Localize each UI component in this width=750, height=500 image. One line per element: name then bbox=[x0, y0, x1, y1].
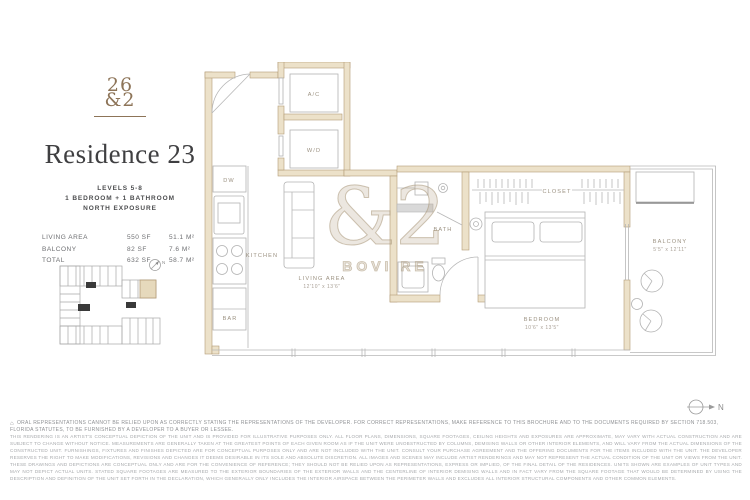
wd-closet: W/D bbox=[279, 130, 338, 168]
bedroom-closet: CLOSET bbox=[472, 179, 624, 205]
brochure-page: 26 &2 Residence 23 LEVELS 5-8 1 BEDROOM … bbox=[0, 0, 750, 500]
residence-title: Residence 23 bbox=[30, 139, 210, 170]
ac-closet: A/C bbox=[279, 74, 338, 112]
bed bbox=[470, 212, 585, 308]
area-label: LIVING AREA bbox=[42, 234, 127, 241]
floor-plan-svg: A/C W/D DW KITCHEN BAR bbox=[200, 62, 720, 374]
unit-config: 1 BEDROOM + 1 BATHROOM bbox=[30, 194, 210, 204]
room-label-dw: DW bbox=[223, 178, 235, 184]
info-panel: 26 &2 Residence 23 LEVELS 5-8 1 BEDROOM … bbox=[30, 78, 210, 269]
room-label-closet: CLOSET bbox=[543, 189, 572, 195]
floor-plan: A/C W/D DW KITCHEN BAR bbox=[200, 62, 720, 374]
room-label-kitchen: KITCHEN bbox=[246, 253, 278, 259]
key-plan-compass-icon: N bbox=[150, 260, 166, 271]
logo-divider bbox=[94, 116, 146, 117]
balcony: BALCONY 5'5" x 12'11" bbox=[630, 166, 716, 356]
room-label-bedroom: BEDROOM bbox=[524, 317, 561, 323]
brand-logo-line2: &2 bbox=[30, 93, 210, 108]
unit-info: LEVELS 5-8 1 BEDROOM + 1 BATHROOM NORTH … bbox=[30, 184, 210, 214]
room-label-bath: BATH bbox=[434, 227, 453, 233]
area-row-living: LIVING AREA 550 SF 51.1 M² bbox=[42, 234, 210, 241]
room-label-wd: W/D bbox=[307, 148, 321, 154]
brand-logo: 26 &2 bbox=[30, 78, 210, 108]
room-dim-living: 12'10" x 13'6" bbox=[303, 284, 340, 290]
kitchen-fixtures: DW KITCHEN BAR bbox=[213, 166, 278, 348]
key-plan-building bbox=[60, 266, 160, 344]
disclaimer-body: THIS RENDERING IS AN ARTIST'S CONCEPTUAL… bbox=[10, 433, 742, 482]
room-label-living: LIVING AREA bbox=[299, 276, 346, 282]
area-label: BALCONY bbox=[42, 246, 127, 253]
area-sf: 82 SF bbox=[127, 246, 169, 253]
key-plan-highlight-unit bbox=[140, 280, 156, 298]
compass-north-label: N bbox=[718, 403, 724, 412]
key-plan-cores bbox=[78, 282, 136, 311]
entry-door bbox=[212, 74, 250, 113]
area-row-balcony: BALCONY 82 SF 7.6 M² bbox=[42, 246, 210, 253]
disclaimer-line1-text: ORAL REPRESENTATIONS CANNOT BE RELIED UP… bbox=[10, 420, 718, 433]
room-label-bar: BAR bbox=[223, 316, 238, 322]
unit-exposure: NORTH EXPOSURE bbox=[30, 204, 210, 214]
room-dim-balcony: 5'5" x 12'11" bbox=[653, 247, 687, 253]
room-dim-bedroom: 10'6" x 13'5" bbox=[525, 325, 559, 331]
unit-levels: LEVELS 5-8 bbox=[30, 184, 210, 194]
sofa bbox=[284, 182, 314, 268]
disclaimer-line1: ⌂ORAL REPRESENTATIONS CANNOT BE RELIED U… bbox=[10, 420, 742, 433]
room-label-ac: A/C bbox=[308, 92, 321, 98]
area-sf: 550 SF bbox=[127, 234, 169, 241]
key-plan: N bbox=[52, 256, 170, 360]
room-label-balcony: BALCONY bbox=[653, 239, 687, 245]
compass-icon: N bbox=[684, 396, 730, 418]
key-plan-north-label: N bbox=[162, 260, 165, 265]
